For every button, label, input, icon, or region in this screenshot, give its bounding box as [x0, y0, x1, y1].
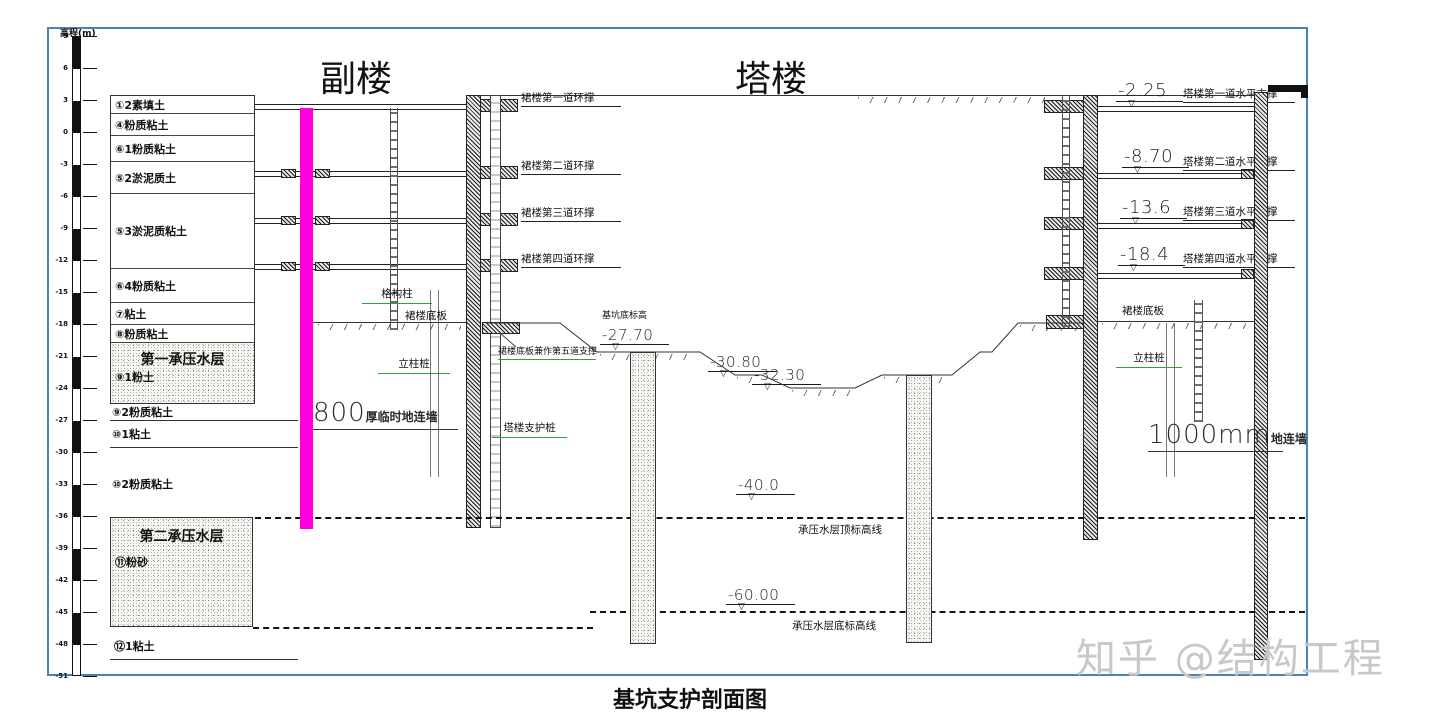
aquifer-bottom-line — [590, 611, 1305, 613]
soil-layer-label: ④粉质粘土 — [111, 117, 168, 133]
frame-right — [1306, 27, 1308, 676]
axis-tick-line — [83, 132, 97, 133]
axis-tick-label: -30 — [40, 448, 68, 456]
lattice-column-right-bay — [1194, 300, 1203, 422]
axis-tick-line — [83, 100, 97, 101]
soil-layer-label: ⑧粉质粘土 — [111, 326, 168, 342]
wale-block — [281, 169, 296, 178]
axis-tick-line — [83, 516, 97, 517]
annex-building-title: 副楼 — [320, 50, 392, 102]
axis-tick-label: -15 — [40, 288, 68, 296]
wale-block — [315, 216, 330, 225]
podium-slab-block-left — [482, 322, 520, 334]
elevation-ruler: 9630-3-6-9-12-15-18-21-24-27-30-33-36-39… — [40, 36, 110, 686]
axis-tick-line — [83, 164, 97, 165]
soil-layer-row: ④粉质粘土 — [111, 114, 254, 136]
axis-tick-line — [83, 260, 97, 261]
soil-layer-row: ⑤2淤泥质土 — [111, 162, 254, 194]
annex-strut-label-3: 裙楼第三道环撑 — [521, 205, 621, 222]
wall-1000-callout: 1000mm地连墙 — [1148, 420, 1283, 452]
axis-tick-label: -18 — [40, 320, 68, 328]
soil-hatch-ticks — [318, 324, 461, 330]
elevation-marker-8.70: -8.70▽ — [1122, 146, 1189, 168]
axis-tick-label: -24 — [40, 384, 68, 392]
axis-tick-line — [83, 644, 97, 645]
wale-block — [315, 169, 330, 178]
aquifer-bottom-label: 承压水层底标高线 — [792, 618, 876, 633]
tower-pit-right-wall — [1083, 95, 1098, 540]
tower-strut-label-2: 塔楼第二道水平支撑 — [1183, 154, 1295, 171]
tower-strut-line-4 — [1098, 273, 1254, 279]
axis-tick-label: -39 — [40, 544, 68, 552]
tower-pile-callout: 塔楼支护桩 — [492, 420, 567, 438]
axis-tick-label: 9 — [40, 32, 68, 40]
soil-layer-label: ⑩2粉质粘土 — [112, 476, 173, 492]
axis-tick-label: -27 — [40, 416, 68, 424]
wall-1000-number: 1000mm — [1148, 420, 1271, 450]
soil-boundary-line — [110, 420, 298, 421]
soil-layer-row: ⑤3淤泥质粘土 — [111, 194, 254, 269]
axis-tick-label: -6 — [40, 192, 68, 200]
ruler-segment — [73, 421, 80, 453]
soil-layer-row: ⑧粉质粘土 — [111, 325, 254, 343]
tower-strut-label-3: 塔楼第三道水平支撑 — [1183, 204, 1295, 221]
soil-layer-label: ⑦粘土 — [111, 306, 146, 322]
ruler-segment — [73, 485, 80, 517]
tower-support-pile-left — [490, 95, 501, 528]
soil-layer-row: ①2素填土 — [111, 96, 254, 114]
ruler-segment — [73, 165, 80, 197]
column-pile-callout-left: 立柱桩 — [378, 356, 450, 374]
wall-800-callout: 800厚临时地连墙 — [313, 398, 458, 430]
magenta-marker-bar — [300, 108, 313, 529]
soil-boundary-line — [110, 447, 298, 448]
axis-tick-line — [83, 196, 97, 197]
wale-block — [281, 216, 296, 225]
aquifer-1-name: 第一承压水层 — [111, 349, 254, 369]
slab-as-strut-callout: 裙楼底板兼作第五道支撑 — [498, 344, 596, 360]
annex-strut-label-2: 裙楼第二道环撑 — [521, 158, 621, 175]
axis-tick-label: -21 — [40, 352, 68, 360]
podium-slab-callout-right: 裙楼底板 — [1122, 303, 1164, 318]
elevation-marker-32.30: -32.30▽ — [752, 366, 821, 385]
aquifer-top-line — [255, 517, 1305, 519]
soil-layer-column: ①2素填土④粉质粘土⑥1粉质粘土⑤2淤泥质土⑤3淤泥质粘土⑥4粉质粘土⑦粘土⑧粉… — [110, 95, 255, 404]
tower-strut-line-2 — [1098, 173, 1254, 179]
soil-layer-row: ⑥1粉质粘土 — [111, 136, 254, 162]
axis-tick-label: -36 — [40, 512, 68, 520]
wall-cap-step — [1301, 85, 1308, 98]
podium-floor-line-right — [1098, 321, 1254, 322]
ruler-segment — [73, 101, 80, 133]
axis-tick-label: -33 — [40, 480, 68, 488]
wale-block — [1241, 269, 1254, 279]
soil-layer-label: ⑩1粘土 — [112, 426, 151, 442]
axis-tick-line — [83, 676, 97, 677]
soil-layer-label: ⑨2粉质粘土 — [112, 404, 173, 420]
column-pile-callout-right: 立柱桩 — [1116, 350, 1182, 368]
elevation-marker-27.70: -27.70▽ — [600, 326, 669, 345]
soil-layer-label: ⑥1粉质粘土 — [111, 141, 176, 157]
diaphragm-wall-800 — [466, 95, 481, 528]
soil-hatch-ticks — [1102, 323, 1250, 329]
axis-tick-line — [83, 36, 97, 37]
diaphragm-wall-1000 — [1254, 92, 1268, 660]
axis-tick-label: 0 — [40, 128, 68, 136]
axis-tick-line — [83, 228, 97, 229]
drawing-title: 基坑支护剖面图 — [560, 682, 820, 714]
aquifer-2-name: 第二承压水层 — [111, 518, 252, 546]
podium-slab-callout: 裙楼底板 — [405, 308, 447, 323]
axis-tick-line — [83, 292, 97, 293]
elevation-marker-60.00: -60.00▽ — [726, 586, 795, 605]
wale-block — [281, 262, 296, 271]
axis-tick-label: -9 — [40, 224, 68, 232]
elevation-marker-18.4: -18.4▽ — [1118, 244, 1185, 266]
axis-tick-line — [83, 324, 97, 325]
soil-layer-label: ⑫1粘土 — [114, 638, 155, 654]
wall-1000-text: 地连墙 — [1271, 432, 1307, 446]
axis-tick-label: 3 — [40, 96, 68, 104]
lattice-column-right-wall — [1062, 95, 1070, 327]
axis-tick-line — [83, 388, 97, 389]
axis-tick-label: -12 — [40, 256, 68, 264]
soil-layer-row: ⑥4粉质粘土 — [111, 269, 254, 303]
tower-strut-label-4: 塔楼第四道水平支撑 — [1183, 251, 1295, 268]
ruler-segment — [73, 549, 80, 581]
ruler-segment — [73, 293, 80, 325]
axis-tick-label: -48 — [40, 640, 68, 648]
ruler-segment — [73, 37, 80, 69]
lattice-column-callout: 格构柱 — [362, 286, 432, 304]
axis-tick-label: 6 — [40, 64, 68, 72]
elevation-marker-40.0: -40.0▽ — [736, 476, 795, 495]
ruler-segment — [73, 613, 80, 645]
tower-strut-line-3 — [1098, 223, 1254, 229]
soil-layer-label: ⑤2淤泥质土 — [111, 170, 176, 186]
annex-strut-label-1: 裙楼第一道环撑 — [521, 90, 621, 107]
soil-layer-row: ⑦粘土 — [111, 303, 254, 325]
elevation-marker-13.6: -13.6▽ — [1120, 197, 1187, 219]
aquifer-top-label: 承压水层顶标高线 — [798, 522, 882, 537]
soil-layer-label: ①2素填土 — [111, 97, 165, 113]
bored-pile-2 — [906, 375, 932, 643]
frame-top — [47, 27, 1308, 29]
soil-hatch-ticks — [858, 97, 1046, 103]
soil-layer-row: 第一承压水层⑨1粉土 — [111, 343, 254, 403]
axis-tick-line — [83, 452, 97, 453]
bored-pile-1 — [630, 352, 656, 644]
tower-strut-line-1 — [1098, 106, 1254, 112]
annex-strut-line-1 — [255, 104, 467, 110]
axis-tick-label: -45 — [40, 608, 68, 616]
drawing-canvas: 高程(m) 9630-3-6-9-12-15-18-21-24-27-30-33… — [0, 0, 1440, 714]
wall-800-text: 厚临时地连墙 — [366, 410, 438, 424]
soil-hatch-ticks — [792, 390, 854, 396]
aquifer-2-box: 第二承压水层 ⑪粉砂 — [110, 517, 253, 627]
axis-tick-line — [83, 580, 97, 581]
axis-tick-label: -3 — [40, 160, 68, 168]
axis-tick-line — [83, 68, 97, 69]
aquifer-2-soil: ⑪粉砂 — [111, 554, 252, 570]
column-pile-lines-right — [1166, 323, 1175, 477]
axis-tick-label: -51 — [40, 672, 68, 680]
soil-layer-label: ⑤3淤泥质粘土 — [111, 223, 187, 239]
wale-block — [315, 262, 330, 271]
watermark: 知乎 @结构工程 — [1076, 626, 1385, 684]
axis-tick-line — [83, 548, 97, 549]
axis-tick-line — [83, 420, 97, 421]
soil-layer-label: ⑥4粉质粘土 — [111, 278, 176, 294]
soil-layer-label: ⑨1粉土 — [111, 369, 154, 385]
axis-tick-line — [83, 484, 97, 485]
wall-800-number: 800 — [313, 398, 366, 428]
elevation-marker-2.25: -2.25▽ — [1116, 80, 1183, 102]
aquifer-bottom-line-left — [253, 627, 593, 629]
annex-strut-label-4: 裙楼第四道环撑 — [521, 251, 621, 268]
axis-tick-label: -42 — [40, 576, 68, 584]
ruler-segment — [73, 229, 80, 261]
axis-tick-line — [83, 612, 97, 613]
axis-tick-line — [83, 356, 97, 357]
soil-boundary-line — [110, 659, 298, 660]
pit-floor-label: 基坑底标高 — [602, 308, 647, 321]
ruler-segment — [73, 357, 80, 389]
